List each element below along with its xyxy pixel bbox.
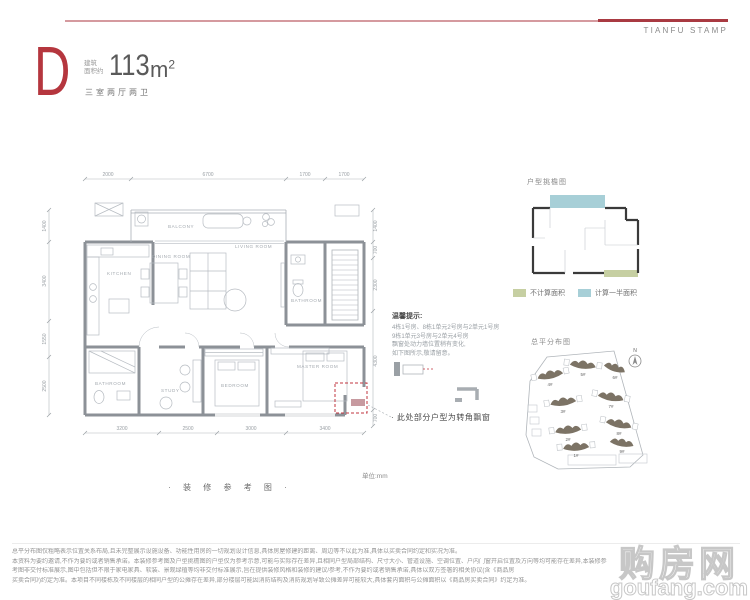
room-study: STUDY [161,388,180,393]
dim-bottom-3: 3000 [245,426,256,432]
area-unit: m2 [150,57,175,83]
room-labels: BALCONY KITCHEN DINING ROOM LIVING ROOM … [95,224,338,393]
top-rule-light [65,20,598,22]
eaves-diagram [505,190,675,285]
dim-right-5: 700 [373,414,379,423]
dim-bottom-2: 2500 [182,426,193,432]
building-9: 9# [609,437,634,454]
corner-wall-glyph [455,384,487,404]
walls [85,242,364,415]
legend-label-half-area: 计算一半面积 [595,288,637,298]
dim-left-3: 1550 [42,333,48,344]
top-rule-dark [598,19,728,22]
dim-bottom-4: 3400 [319,426,330,432]
building-6: 6# [603,361,626,380]
unit-type-letter: D [34,44,70,98]
dim-top-2: 6700 [202,172,213,178]
dim-bottom-1: 3200 [116,426,127,432]
disclaimer-line-3: 考图非交付标准展示,图中包括但不限于家电家具、软装、景观绿植等均非交付标准展示,… [12,567,740,577]
legend-label-not-counted: 不计算面积 [530,288,565,298]
room-bath-top: BATHROOM [291,298,322,303]
area-value: 113 [109,51,150,81]
stair-shaft [332,250,358,320]
eaves-legend: 不计算面积 计算一半面积 [513,288,637,298]
disclaimer-line-1: 总平分布图仅粗略表示位置关系布局,且未完整展示设施设备、功能性用房的一切规划设计… [12,548,740,558]
area-unit-sup: 2 [168,58,175,72]
dim-right-4: 4300 [373,355,379,366]
disclaimer-line-2: 本资料为要约邀请,不作为要约或者销售承诺。本装修参考图及户型挑檐图的户型仅为参考… [12,558,740,568]
room-bath-bottom: BATHROOM [95,381,126,386]
building-label: 6# [612,375,618,380]
eaves-diagram-title: 户型挑檐图 [527,177,567,187]
dim-left-4: 2500 [42,380,48,391]
eaves-interior-lines [533,208,638,273]
room-dining: DINING ROOM [152,254,190,259]
dim-top-3: 1700 [299,172,310,178]
site-plan-title: 总平分布图 [531,337,571,347]
site-plan: N 4# 5# 6# 3# 7# 2# [518,347,703,477]
building-1: 1# [557,441,595,458]
building-label: 7# [608,404,614,409]
room-kitchen: KITCHEN [107,271,131,276]
dim-top-1: 2000 [102,172,113,178]
room-balcony: BALCONY [168,224,194,229]
legend-item-not-counted: 不计算面积 [513,288,565,298]
area-label-line2: 面积约 [84,68,104,76]
building-label: 1# [573,453,579,458]
bay-window-annotation: · 此处部分户型为转角飘窗 [391,412,490,423]
building-7: 7# [591,389,630,409]
dim-left-1: 1400 [42,220,48,231]
area-unit-base: m [150,57,168,82]
dim-right-1: 1400 [373,220,379,231]
building-label: 4# [547,382,553,387]
dimension-labels: 2000 6700 1700 1700 3200 2500 3000 3400 … [42,172,379,432]
furniture [87,203,359,409]
not-counted-eave [604,270,638,277]
building-label: 3# [560,409,566,414]
building-4: 4# [531,367,570,387]
top-rule [65,19,728,22]
eaves-walls [533,208,638,273]
unit-note: 单位:mm [362,470,388,480]
building-label: 5# [580,372,586,377]
building-2: 2# [549,424,588,442]
half-area-balcony [550,195,605,208]
building-label: 2# [565,437,571,442]
building-label: 8# [616,431,622,436]
brochure-page: TIANFU STAMP D 建筑 面积约 113 m2 三室两厅两卫 2000… [0,0,750,600]
notice-title: 温馨提示: [392,311,562,321]
north-compass: N [629,348,641,367]
building-3: 3# [544,395,583,414]
dim-right-2: 700 [373,246,379,255]
brand-logo-text: TIANFU STAMP [644,26,728,35]
legend-swatch-green [513,289,526,297]
area-label: 建筑 面积约 [84,60,104,75]
legend-swatch-teal [578,289,591,297]
disclaimer-block: 总平分布图仅粗略表示位置关系布局,且未完整展示设施设备、功能性用房的一切规划设计… [12,543,740,586]
room-master: MASTER ROOM [297,364,338,369]
area-label-line1: 建筑 [84,60,104,68]
dim-right-3: 2300 [373,279,379,290]
dim-left-2: 3400 [42,275,48,286]
legend-item-half-area: 计算一半面积 [578,288,637,298]
notice-line-1: 4栋1号房、8栋1单元2号房与2单元1号房 [392,324,562,333]
plan-caption: · 装 修 参 考 图 · [150,482,310,493]
building-label: 9# [619,449,625,454]
room-layout-text: 三室两厅两卫 [85,87,151,98]
room-living: LIVING ROOM [235,244,272,249]
notice-sketch [393,356,438,378]
dim-top-4: 1700 [338,172,349,178]
room-bedroom: BEDROOM [221,383,249,388]
north-label: N [633,348,637,354]
site-roads [528,405,647,465]
disclaimer-line-4: 买卖合同》)约定为准。本项目不同楼栋及不同楼层的相同户型的公摊存在差异,部分楼层… [12,577,740,587]
building-5: 5# [564,359,603,377]
bay-window-highlight [335,383,391,417]
